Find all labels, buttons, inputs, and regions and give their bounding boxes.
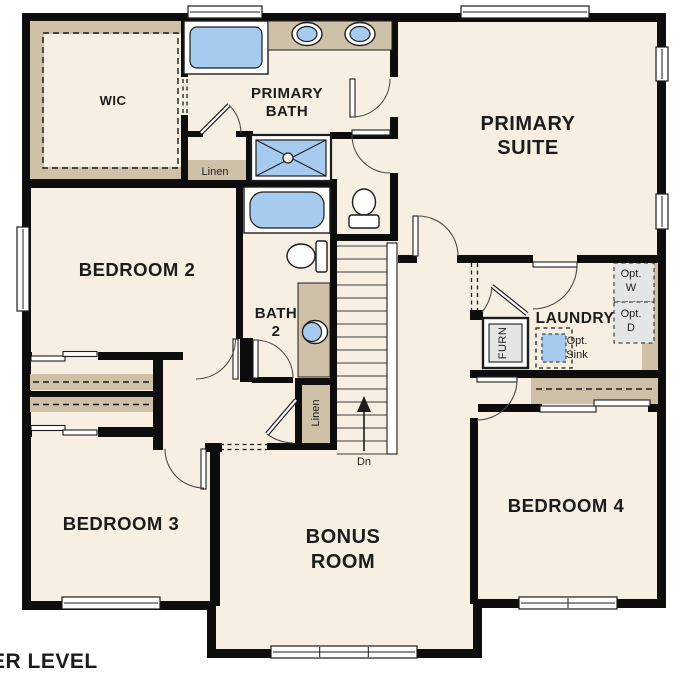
window-bedroom2 bbox=[17, 227, 29, 311]
bath2-label-1: BATH bbox=[255, 305, 298, 322]
bath2-label-2: 2 bbox=[272, 323, 281, 340]
furnace-box: FURN bbox=[483, 318, 528, 368]
stair-railing bbox=[387, 243, 397, 454]
bonus-room-label-2: ROOM bbox=[311, 551, 375, 573]
opt-washer-label-1: Opt. bbox=[621, 268, 642, 280]
bedroom3-label: BEDROOM 3 bbox=[63, 513, 180, 534]
primary-bath-label-2: BATH bbox=[266, 103, 309, 120]
linen-closet-top: Linen bbox=[188, 160, 246, 180]
linen-hall-label: Linen bbox=[310, 400, 322, 427]
opt-dryer-label-1: Opt. bbox=[621, 308, 642, 320]
opt-sink-label-1: Opt. bbox=[567, 335, 588, 347]
primary-bath-label-1: PRIMARY bbox=[251, 85, 323, 102]
wic-label: WIC bbox=[100, 93, 127, 108]
window-primary-suite-top bbox=[461, 6, 589, 18]
primary-shower bbox=[251, 135, 331, 181]
bedroom4-label: BEDROOM 4 bbox=[508, 495, 625, 516]
floor-plan-page: WIC bbox=[0, 0, 687, 687]
furnace-label: FURN bbox=[497, 327, 509, 360]
stair-direction-label: Dn bbox=[357, 456, 371, 468]
primary-suite-label-2: SUITE bbox=[497, 137, 558, 159]
bonus-room-label-1: BONUS bbox=[306, 526, 381, 548]
window-bonus-room bbox=[271, 646, 417, 658]
room-wic: WIC bbox=[30, 21, 181, 179]
opt-sink-label-2: Sink bbox=[566, 349, 588, 361]
window-primary-bath bbox=[188, 6, 262, 18]
primary-suite-label-1: PRIMARY bbox=[481, 113, 576, 135]
floor-level-title: UPPER LEVEL bbox=[0, 650, 98, 673]
window-bedroom4 bbox=[519, 597, 617, 609]
window-primary-suite-right-1 bbox=[656, 47, 668, 81]
laundry-label: LAUNDRY bbox=[536, 310, 615, 327]
linen-closet-hall: Linen bbox=[302, 385, 330, 443]
window-bedroom3 bbox=[62, 597, 160, 609]
bedroom2-label: BEDROOM 2 bbox=[79, 259, 196, 280]
linen-top-label: Linen bbox=[202, 166, 229, 178]
window-primary-suite-right-2 bbox=[656, 194, 668, 229]
opt-washer-label-2: W bbox=[626, 282, 637, 294]
opt-dryer-label-2: D bbox=[627, 322, 635, 334]
floor-plan-drawing: WIC bbox=[0, 0, 687, 687]
